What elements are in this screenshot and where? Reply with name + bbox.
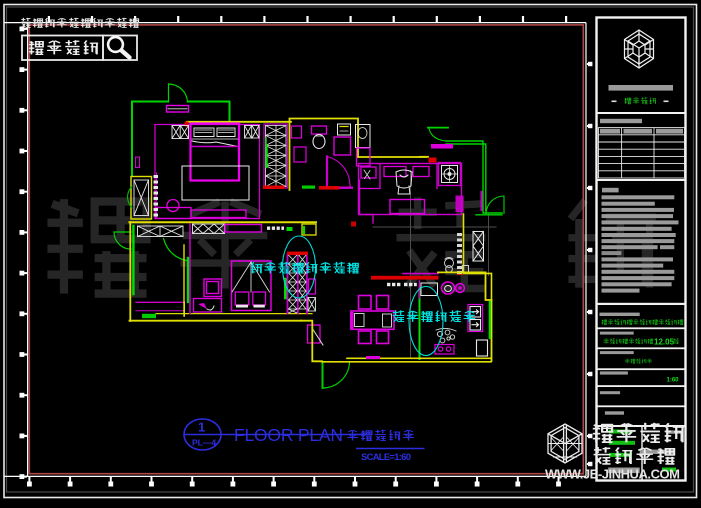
svg-text:1: 1 <box>198 420 205 435</box>
svg-text:SCALE=1:60: SCALE=1:60 <box>361 452 411 463</box>
svg-text:FLOOR PLAN: FLOOR PLAN <box>234 425 343 445</box>
svg-text:WWW.JE-JINHUA.COM: WWW.JE-JINHUA.COM <box>545 467 680 482</box>
svg-text:1:60: 1:60 <box>667 378 680 384</box>
svg-text:12.05: 12.05 <box>654 337 675 346</box>
svg-text:PL—4: PL—4 <box>192 438 216 448</box>
